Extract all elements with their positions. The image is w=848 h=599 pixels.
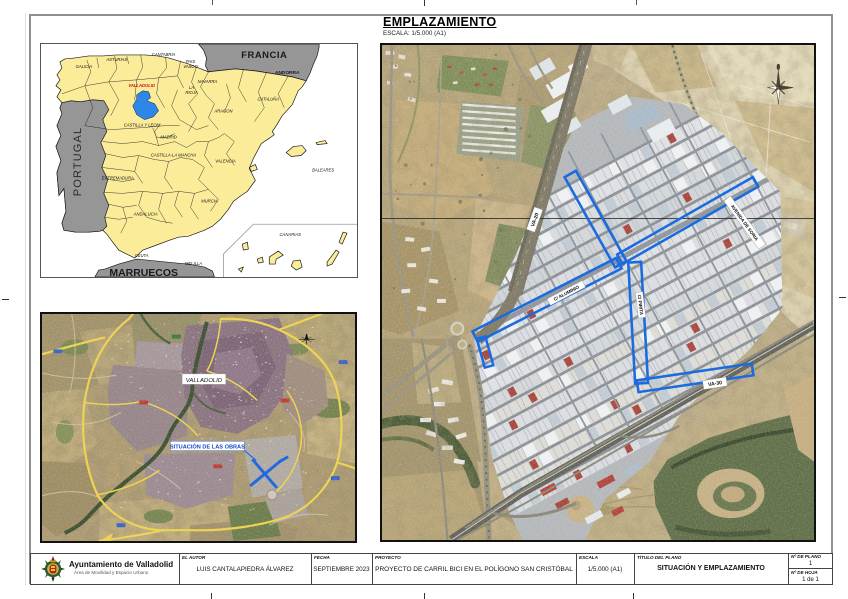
svg-text:PORTUGAL: PORTUGAL [72,127,84,197]
svg-text:CASTILLA-LA MANCHA: CASTILLA-LA MANCHA [151,153,197,158]
svg-text:CEUTA: CEUTA [135,253,149,258]
svg-text:VALLADOLID: VALLADOLID [186,378,223,384]
svg-text:MURCIA: MURCIA [201,198,218,203]
svg-text:SITUACIÓN DE LAS OBRAS: SITUACIÓN DE LAS OBRAS [170,442,245,450]
svg-text:BALEARES: BALEARES [312,167,334,172]
svg-text:VASCO: VASCO [183,64,198,69]
svg-text:GALICIA: GALICIA [76,64,93,69]
svg-text:VALENCIA: VALENCIA [215,158,236,163]
svg-text:ARAGON: ARAGON [213,109,233,114]
svg-text:MADRID: MADRID [160,135,176,140]
svg-text:ANDORRA: ANDORRA [275,70,300,76]
svg-text:VALLADOLID: VALLADOLID [128,83,155,88]
svg-text:EXTREMADURA: EXTREMADURA [102,175,134,180]
svg-text:ANDALUCIA: ANDALUCIA [133,211,158,216]
svg-text:FRANCIA: FRANCIA [241,50,287,61]
svg-text:RIOJA: RIOJA [185,90,198,95]
svg-text:CANARIAS: CANARIAS [280,232,302,237]
svg-text:ASTURIAS: ASTURIAS [105,57,127,62]
svg-text:CASTILLA Y LEON: CASTILLA Y LEON [124,123,161,128]
svg-text:MELILLA: MELILLA [185,261,202,266]
svg-text:CANTABRIA: CANTABRIA [152,52,176,57]
svg-text:MARRUECOS: MARRUECOS [109,268,178,277]
svg-text:CATALUÑA: CATALUÑA [257,97,279,102]
svg-text:NAVARRA: NAVARRA [198,79,218,84]
